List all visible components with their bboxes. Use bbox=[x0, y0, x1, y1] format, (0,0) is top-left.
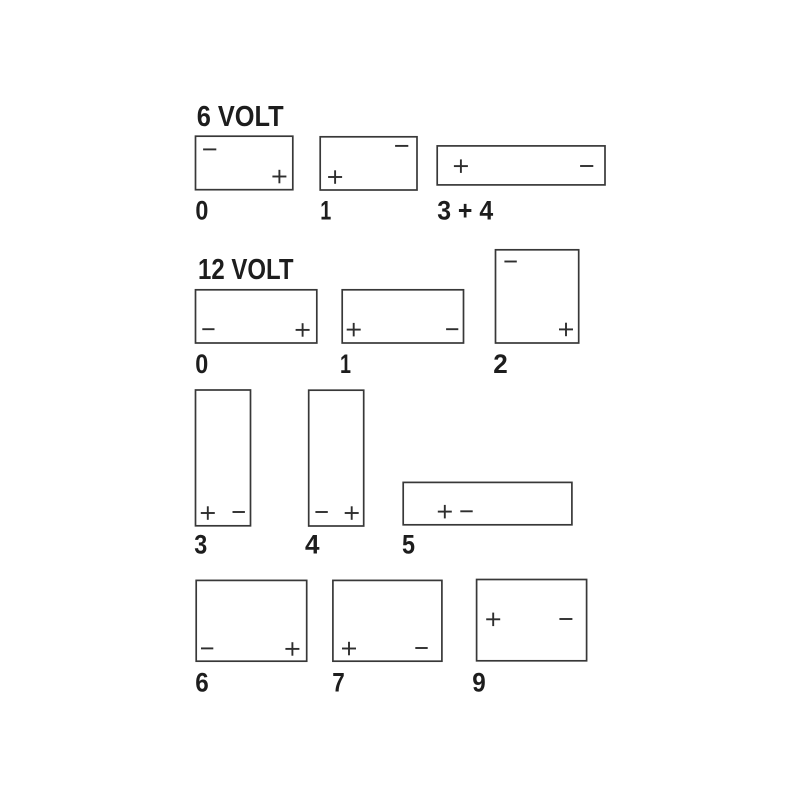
svg-text:9: 9 bbox=[472, 668, 486, 698]
svg-text:6: 6 bbox=[195, 668, 209, 698]
svg-text:1: 1 bbox=[340, 349, 351, 379]
svg-text:4: 4 bbox=[305, 529, 320, 559]
svg-text:1: 1 bbox=[320, 195, 331, 225]
svg-text:0: 0 bbox=[195, 349, 208, 379]
svg-text:2: 2 bbox=[493, 349, 508, 379]
svg-text:3 + 4: 3 + 4 bbox=[437, 195, 493, 225]
svg-text:5: 5 bbox=[402, 529, 415, 559]
svg-text:6 VOLT: 6 VOLT bbox=[197, 101, 285, 133]
svg-text:3: 3 bbox=[194, 529, 207, 559]
svg-text:12 VOLT: 12 VOLT bbox=[198, 254, 294, 286]
svg-text:0: 0 bbox=[195, 195, 208, 225]
svg-text:7: 7 bbox=[332, 668, 345, 698]
